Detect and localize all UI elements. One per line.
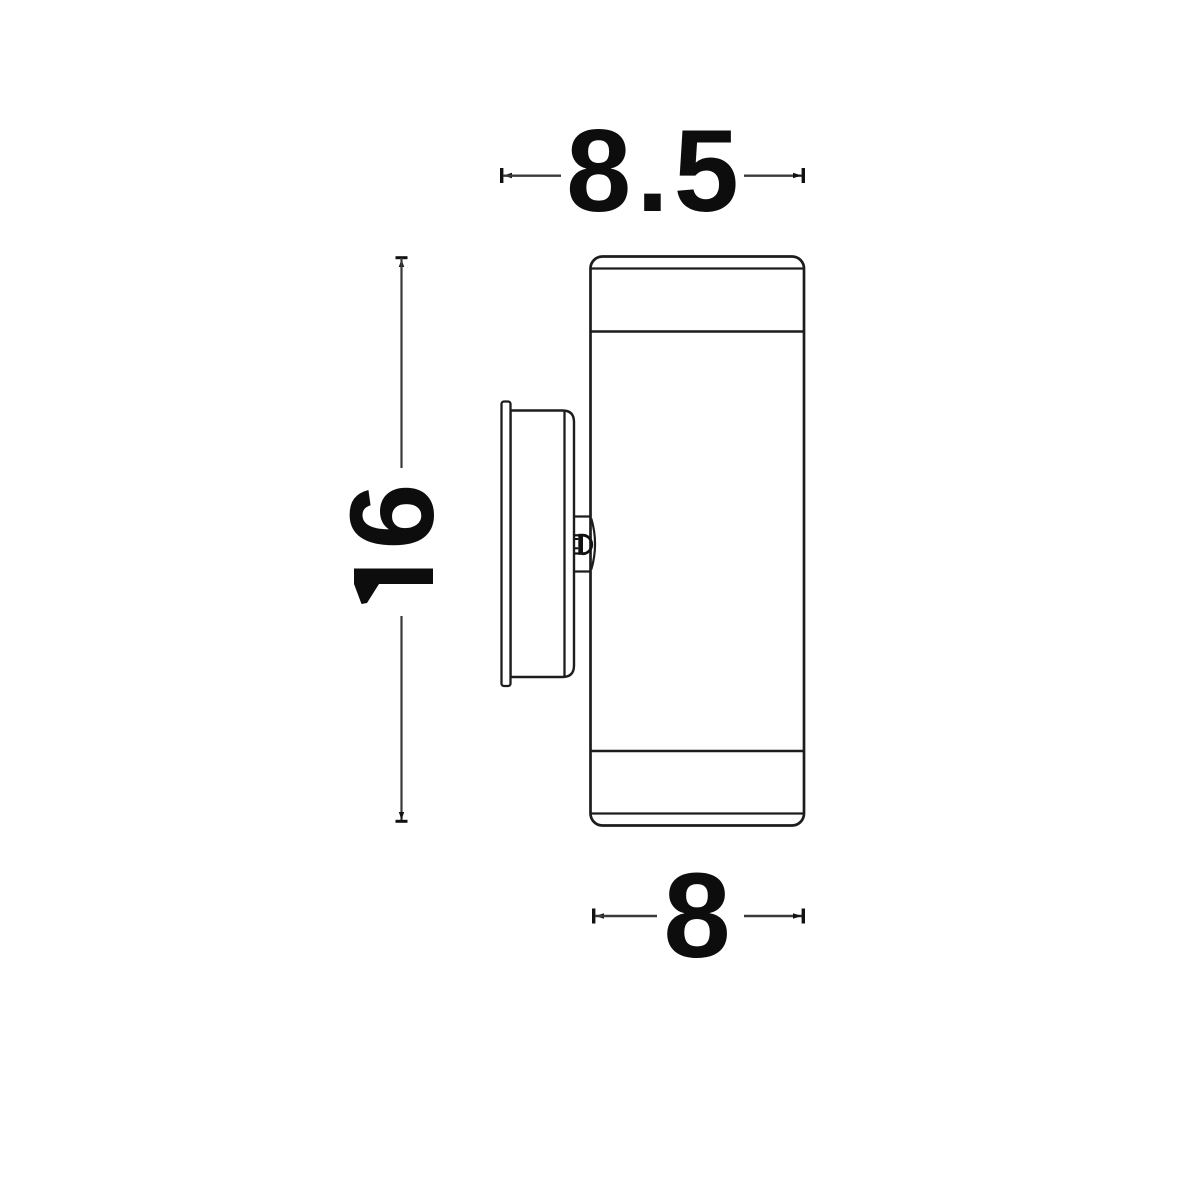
svg-text:6: 6 (326, 483, 459, 549)
svg-text:8: 8 (663, 847, 730, 983)
svg-text:8.5: 8.5 (566, 105, 744, 236)
